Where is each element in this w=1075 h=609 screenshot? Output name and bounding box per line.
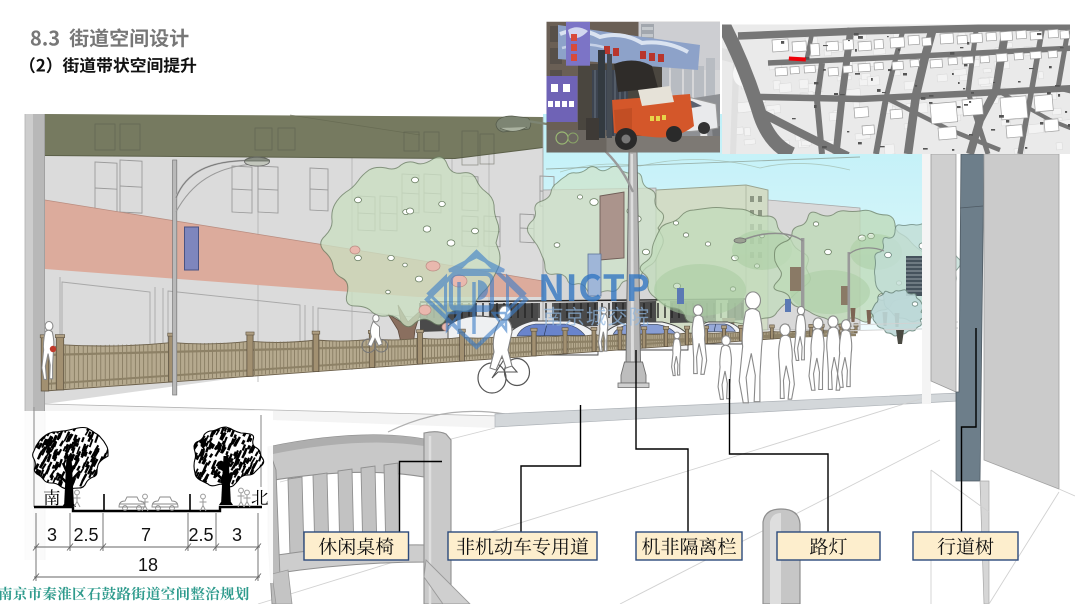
svg-text:2.5: 2.5 [188,525,213,545]
svg-text:3: 3 [232,525,242,545]
svg-text:2.5: 2.5 [73,525,98,545]
svg-text:18: 18 [138,555,158,575]
svg-text:7: 7 [141,525,151,545]
svg-text:3: 3 [47,525,57,545]
